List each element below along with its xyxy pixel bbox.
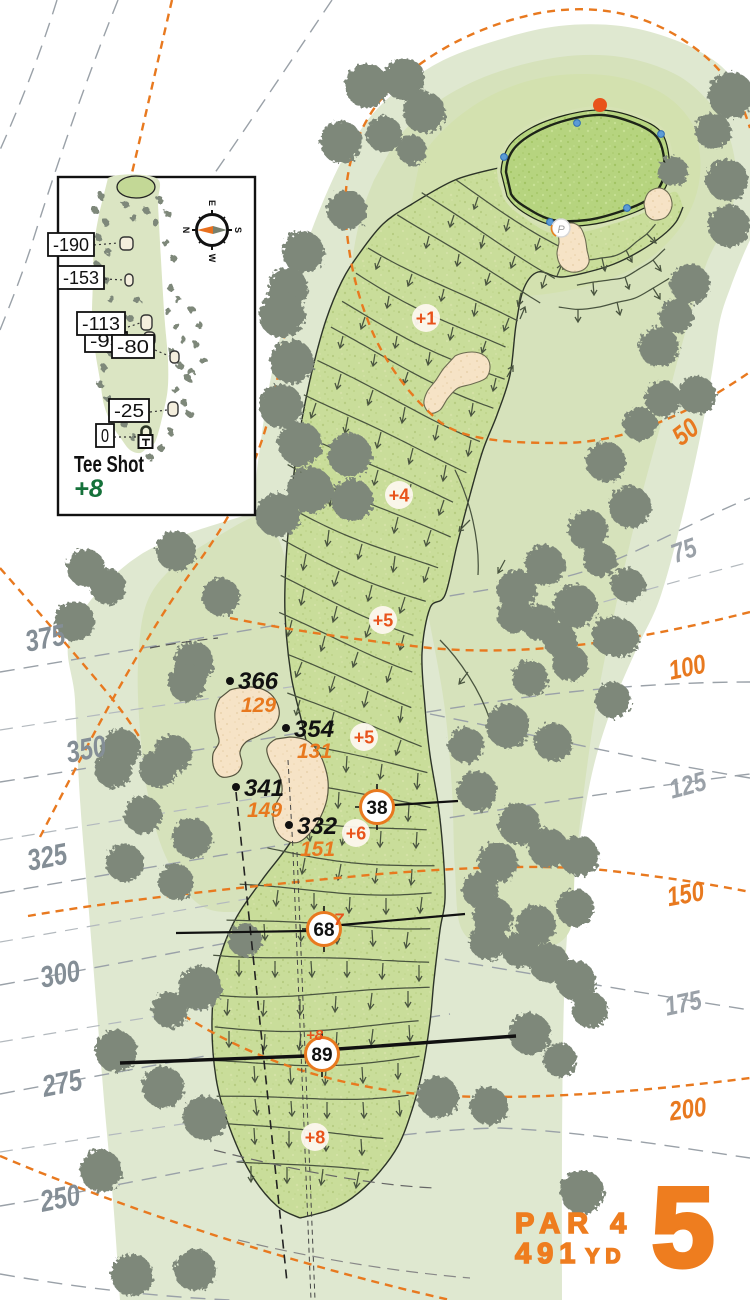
svg-text:-25: -25	[114, 401, 144, 421]
svg-text:7: 7	[334, 910, 345, 929]
svg-text:S: S	[233, 227, 243, 233]
svg-text:131: 131	[297, 740, 332, 763]
svg-text:+8: +8	[74, 475, 103, 503]
svg-text:+8: +8	[306, 1027, 324, 1044]
svg-text:151: 151	[300, 838, 335, 861]
svg-text:+1: +1	[416, 309, 437, 329]
svg-text:0: 0	[101, 426, 109, 446]
svg-text:+8: +8	[305, 1128, 326, 1148]
svg-text:129: 129	[241, 694, 276, 717]
svg-text:38: 38	[366, 798, 387, 819]
svg-text:89: 89	[311, 1045, 332, 1066]
svg-text:-80: -80	[117, 337, 149, 357]
svg-text:366: 366	[238, 668, 279, 695]
svg-text:Tee Shot: Tee Shot	[74, 451, 144, 477]
svg-text:-190: -190	[53, 235, 89, 255]
svg-text:354: 354	[294, 716, 334, 743]
svg-text:+4: +4	[389, 486, 410, 506]
svg-text:N: N	[181, 227, 191, 234]
svg-text:341: 341	[244, 775, 284, 802]
svg-text:+5: +5	[373, 611, 394, 631]
svg-text:PAR 4: PAR 4	[515, 1208, 633, 1240]
svg-text:-113: -113	[82, 314, 120, 334]
svg-text:149: 149	[247, 799, 282, 822]
svg-text:W: W	[207, 254, 217, 263]
svg-text:E: E	[207, 200, 217, 206]
svg-text:P: P	[557, 224, 565, 236]
svg-text:-153: -153	[63, 268, 99, 288]
svg-text:+6: +6	[346, 824, 367, 844]
svg-text:5: 5	[652, 1165, 714, 1290]
svg-text:68: 68	[313, 920, 334, 941]
svg-text:+5: +5	[354, 728, 375, 748]
svg-text:332: 332	[297, 813, 338, 840]
svg-text:150: 150	[665, 876, 707, 912]
svg-text:200: 200	[667, 1092, 709, 1127]
